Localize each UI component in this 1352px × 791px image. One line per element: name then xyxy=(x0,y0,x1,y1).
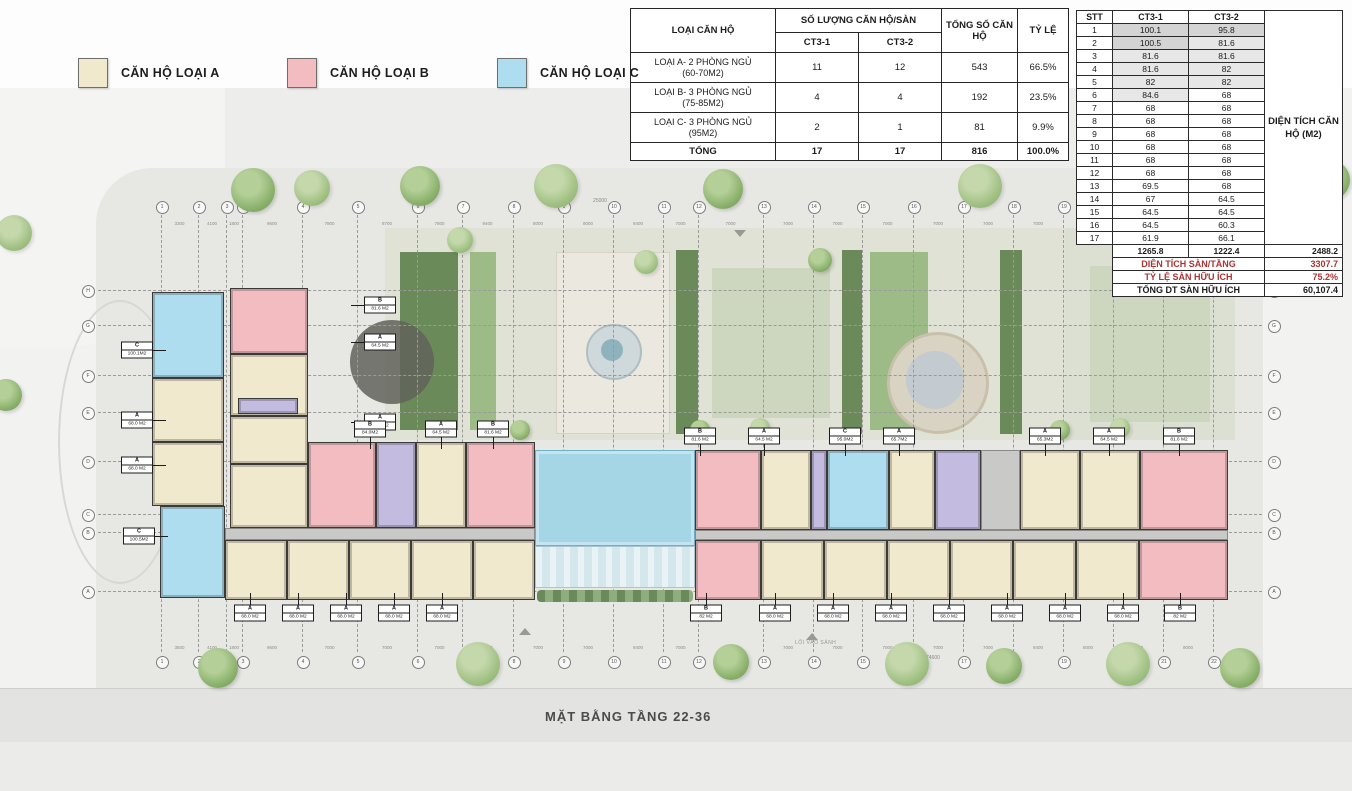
grid-marker-left: C xyxy=(82,509,95,522)
grid-marker-top: 15 xyxy=(857,201,870,214)
unit-type-letter: B xyxy=(478,422,508,430)
grid-dimension: 9400 xyxy=(633,221,643,226)
tree xyxy=(808,248,832,272)
tree xyxy=(1220,648,1260,688)
unit-area-label: B82 M2 xyxy=(1164,605,1196,622)
area-ct32-value: 60.3 xyxy=(1189,219,1265,232)
label-leader-line xyxy=(152,350,166,351)
unit-area-label: A65.7M2 xyxy=(883,428,915,445)
unit-type-a xyxy=(152,378,224,442)
label-leader-line xyxy=(441,437,442,449)
summary-total: 192 xyxy=(942,83,1018,113)
area-ct31-value: 64.5 xyxy=(1113,206,1189,219)
grid-marker-bottom: 15 xyxy=(857,656,870,669)
grid-marker-left: F xyxy=(82,370,95,383)
area-ct32-value: 68 xyxy=(1189,102,1265,115)
grid-marker-bottom: 19 xyxy=(1058,656,1071,669)
tree xyxy=(198,648,238,688)
area-stt: 8 xyxy=(1077,115,1113,128)
grid-marker-top: 14 xyxy=(808,201,821,214)
grid-marker-top: 5 xyxy=(352,201,365,214)
grid-marker-right: B xyxy=(1268,527,1281,540)
elevator-core xyxy=(935,450,981,530)
label-leader-line xyxy=(891,593,892,605)
unit-type-letter: A xyxy=(235,606,265,614)
grid-marker-top: 18 xyxy=(1008,201,1021,214)
area-ct32-value: 68 xyxy=(1189,154,1265,167)
label-leader-line xyxy=(152,420,166,421)
area-stt: 10 xyxy=(1077,141,1113,154)
corridor xyxy=(981,450,1020,530)
grid-dimension: 7000 xyxy=(583,645,593,650)
tree xyxy=(1106,642,1150,686)
unit-area-value: 84.0M2 xyxy=(355,430,385,437)
unit-area-value: 68.0 M2 xyxy=(427,614,457,621)
area-ct31-value: 68 xyxy=(1113,154,1189,167)
unit-area-value: 68.0 M2 xyxy=(760,614,790,621)
summary-type: LOẠI C- 3 PHÒNG NGỦ(95M2) xyxy=(631,113,776,143)
unit-type-letter: C xyxy=(124,529,154,537)
unit-type-letter: A xyxy=(992,606,1022,614)
grid-marker-top: 3 xyxy=(221,201,234,214)
unit-type-a xyxy=(230,416,308,464)
grid-dimension: 7000 xyxy=(783,645,793,650)
unit-type-a xyxy=(761,540,824,600)
area-ct32-value: 68 xyxy=(1189,167,1265,180)
tree xyxy=(986,648,1022,684)
col-header-ct31: CT3-1 xyxy=(776,33,859,53)
grid-dimension: 7000 xyxy=(533,645,543,650)
area-ct32-value: 95.8 xyxy=(1189,24,1265,37)
pool-deck xyxy=(535,546,695,588)
unit-area-label: C100.1M2 xyxy=(121,342,153,359)
unit-type-a xyxy=(225,540,287,600)
legend: CĂN HỘ LOẠI ACĂN HỘ LOẠI BCĂN HỘ LOẠI C xyxy=(0,58,700,92)
grid-marker-bottom: 5 xyxy=(352,656,365,669)
grid-dimension: 1800 xyxy=(229,645,239,650)
label-leader-line xyxy=(1045,444,1046,456)
unit-area-value: 68.0 M2 xyxy=(934,614,964,621)
label-leader-line xyxy=(154,536,168,537)
elevator-core xyxy=(376,442,416,528)
grid-marker-bottom: 17 xyxy=(958,656,971,669)
grid-marker-right: F xyxy=(1268,370,1281,383)
unit-type-a xyxy=(761,450,811,530)
summary-ct31: 2 xyxy=(776,113,859,143)
grid-marker-top: 19 xyxy=(1058,201,1071,214)
label-leader-line xyxy=(845,444,846,456)
grid-marker-bottom: 12 xyxy=(693,656,706,669)
grid-dimension: 7800 xyxy=(324,221,334,226)
area-stt: 6 xyxy=(1077,89,1113,102)
swimming-pool xyxy=(535,450,695,546)
area-stt: 12 xyxy=(1077,167,1113,180)
grid-marker-left: E xyxy=(82,407,95,420)
area-stt: 17 xyxy=(1077,232,1113,245)
legend-item-3: CĂN HỘ LOẠI C xyxy=(497,58,639,88)
label-leader-line xyxy=(1007,593,1008,605)
grid-marker-right: D xyxy=(1268,456,1281,469)
area-ct31-value: 68 xyxy=(1113,141,1189,154)
garden-area xyxy=(470,252,496,430)
tree xyxy=(447,227,473,253)
unit-area-value: 81.6 M2 xyxy=(478,430,508,437)
area-sum-ct31: 1265.8 xyxy=(1113,245,1189,258)
unit-area-label: B82 M2 xyxy=(690,605,722,622)
unit-area-value: 64.5 M2 xyxy=(426,430,456,437)
unit-type-b xyxy=(466,442,535,528)
unit-type-letter: A xyxy=(1094,429,1124,437)
unit-type-c xyxy=(152,292,224,378)
grid-dimension: 7000 xyxy=(983,645,993,650)
unit-type-b xyxy=(308,442,376,528)
tree xyxy=(534,164,578,208)
summary-row-3: LOẠI C- 3 PHÒNG NGỦ(95M2)21819.9% xyxy=(631,113,1069,143)
area-col-header-ct3-1: CT3-1 xyxy=(1113,11,1189,24)
entrance-arrow xyxy=(734,230,746,237)
unit-type-letter: A xyxy=(876,606,906,614)
legend-label: CĂN HỘ LOẠI A xyxy=(121,66,220,80)
area-ct32-value: 82 xyxy=(1189,63,1265,76)
grid-marker-top: 11 xyxy=(658,201,671,214)
legend-swatch-2 xyxy=(287,58,317,88)
label-leader-line xyxy=(351,342,365,343)
area-footer-row-3: TỔNG DT SÀN HỮU ÍCH60,107.4 xyxy=(1077,284,1343,297)
plan-caption: MẶT BẰNG TẦNG 22-36 xyxy=(545,709,711,724)
unit-type-letter: B xyxy=(1164,429,1194,437)
unit-type-letter: A xyxy=(1108,606,1138,614)
unit-type-letter: A xyxy=(365,335,395,343)
label-leader-line xyxy=(1180,593,1181,605)
unit-area-label: A64.5 M2 xyxy=(364,334,396,351)
unit-area-label: A68.0 M2 xyxy=(759,605,791,622)
grid-dimension: 8700 xyxy=(382,221,392,226)
grid-marker-bottom: 9 xyxy=(558,656,571,669)
grid-dimension: 8000 xyxy=(533,221,543,226)
unit-type-b xyxy=(695,450,761,530)
label-leader-line xyxy=(394,593,395,605)
grid-marker-bottom: 13 xyxy=(758,656,771,669)
unit-type-a xyxy=(1076,540,1139,600)
col-header-total: TỔNG SỐ CĂN HỘ xyxy=(942,9,1018,53)
area-sum-ct32: 1222.4 xyxy=(1189,245,1265,258)
grid-marker-left: G xyxy=(82,320,95,333)
unit-area-value: 68.0 M2 xyxy=(992,614,1022,621)
area-ct31-value: 67 xyxy=(1113,193,1189,206)
unit-area-label: A64.5 M2 xyxy=(748,428,780,445)
area-footer-label: TỔNG DT SÀN HỮU ÍCH xyxy=(1113,284,1265,297)
label-leader-line xyxy=(1065,593,1066,605)
unit-area-value: 68.0 M2 xyxy=(1108,614,1138,621)
label-leader-line xyxy=(493,437,494,449)
unit-area-label: A68.0 M2 xyxy=(991,605,1023,622)
grid-marker-right: E xyxy=(1268,407,1281,420)
unit-type-letter: A xyxy=(884,429,914,437)
summary-total-ct31: 17 xyxy=(776,143,859,161)
label-leader-line xyxy=(764,444,765,456)
unit-area-value: 68.0 M2 xyxy=(122,466,152,473)
unit-area-value: 100.1M2 xyxy=(122,351,152,358)
area-ct31-value: 82 xyxy=(1113,76,1189,89)
grid-marker-bottom: 10 xyxy=(608,656,621,669)
area-footer-value: 3307.7 xyxy=(1265,258,1343,271)
area-footer-row-2: TỶ LỆ SÀN HỮU ÍCH75.2% xyxy=(1077,271,1343,284)
area-ct31-value: 81.6 xyxy=(1113,63,1189,76)
garden-area xyxy=(1000,250,1022,434)
grid-dimension: 8000 xyxy=(1083,645,1093,650)
unit-area-label: A68.0 M2 xyxy=(817,605,849,622)
unit-area-value: 68.0 M2 xyxy=(331,614,361,621)
label-leader-line xyxy=(1109,444,1110,456)
label-leader-line xyxy=(346,593,347,605)
unit-area-value: 81.6 M2 xyxy=(365,306,395,313)
unit-type-b xyxy=(1140,450,1228,530)
label-leader-line xyxy=(775,593,776,605)
area-sum-spacer xyxy=(1077,245,1113,258)
label-leader-line xyxy=(298,593,299,605)
area-ct32-value: 81.6 xyxy=(1189,37,1265,50)
grid-dimension: 9600 xyxy=(267,645,277,650)
grid-marker-right: G xyxy=(1268,320,1281,333)
unit-type-letter: B xyxy=(691,606,721,614)
area-ct31-value: 68 xyxy=(1113,115,1189,128)
grid-marker-left: D xyxy=(82,456,95,469)
area-footer-value: 60,107.4 xyxy=(1265,284,1343,297)
area-ct32-value: 68 xyxy=(1189,180,1265,193)
area-side-label: DIỆN TÍCH CĂN HỘ (M2) xyxy=(1265,11,1343,245)
grid-marker-bottom: 21 xyxy=(1158,656,1171,669)
unit-type-letter: A xyxy=(122,458,152,466)
summary-total: 81 xyxy=(942,113,1018,143)
area-ct31-value: 68 xyxy=(1113,102,1189,115)
grid-dimension: 1800 xyxy=(229,221,239,226)
tree xyxy=(958,164,1002,208)
entrance-arrow xyxy=(806,633,818,640)
legend-swatch-3 xyxy=(497,58,527,88)
unit-area-value: 64.5 M2 xyxy=(1094,437,1124,444)
unit-type-a xyxy=(473,540,535,600)
unit-type-letter: A xyxy=(818,606,848,614)
label-leader-line xyxy=(351,305,365,306)
unit-area-value: 68.0 M2 xyxy=(818,614,848,621)
area-ct31-value: 81.6 xyxy=(1113,50,1189,63)
tree xyxy=(713,644,749,680)
grid-marker-top: 7 xyxy=(457,201,470,214)
unit-type-a xyxy=(1013,540,1076,600)
unit-type-b xyxy=(695,540,761,600)
area-stt: 2 xyxy=(1077,37,1113,50)
unit-type-letter: A xyxy=(749,429,779,437)
area-ct32-value: 82 xyxy=(1189,76,1265,89)
summary-total-ct32: 17 xyxy=(859,143,942,161)
grid-overall-dimension: 25000 xyxy=(593,198,607,204)
unit-area-value: 81.6 M2 xyxy=(1164,437,1194,444)
area-ct32-value: 64.5 xyxy=(1189,193,1265,206)
unit-area-label: A64.5 M2 xyxy=(425,421,457,438)
unit-area-value: 65.7M2 xyxy=(884,437,914,444)
unit-type-letter: C xyxy=(830,429,860,437)
area-stt: 15 xyxy=(1077,206,1113,219)
unit-area-value: 68.0 M2 xyxy=(235,614,265,621)
tree xyxy=(634,250,658,274)
unit-area-label: A68.0 M2 xyxy=(426,605,458,622)
area-ct31-value: 61.9 xyxy=(1113,232,1189,245)
area-ct31-value: 64.5 xyxy=(1113,219,1189,232)
summary-ct32: 12 xyxy=(859,53,942,83)
unit-type-a xyxy=(1080,450,1140,530)
grid-dimension: 7800 xyxy=(434,221,444,226)
area-ct32-value: 64.5 xyxy=(1189,206,1265,219)
unit-area-label: A64.5 M2 xyxy=(1093,428,1125,445)
unit-type-a xyxy=(887,540,950,600)
unit-area-label: A68.0 M2 xyxy=(1107,605,1139,622)
grid-dimension: 7000 xyxy=(1033,221,1043,226)
unit-type-letter: A xyxy=(426,422,456,430)
tree xyxy=(231,168,275,212)
tree xyxy=(456,642,500,686)
col-header-ct32: CT3-2 xyxy=(859,33,942,53)
unit-type-letter: A xyxy=(122,413,152,421)
corridor xyxy=(225,528,535,540)
summary-ratio: 9.9% xyxy=(1018,113,1069,143)
grid-marker-top: 13 xyxy=(758,201,771,214)
area-ct32-value: 68 xyxy=(1189,128,1265,141)
unit-area-label: A68.0 M2 xyxy=(121,457,153,474)
area-footer-spacer xyxy=(1077,258,1113,271)
grid-marker-top: 8 xyxy=(508,201,521,214)
unit-type-a xyxy=(1020,450,1080,530)
fountain xyxy=(601,339,623,361)
col-header-ratio: TỶ LỆ xyxy=(1018,9,1069,53)
unit-area-label: B81.6 M2 xyxy=(1163,428,1195,445)
summary-ct32: 4 xyxy=(859,83,942,113)
grid-dimension: 3500 xyxy=(174,645,184,650)
unit-area-label: B81.6 M2 xyxy=(684,428,716,445)
grid-marker-bottom: 11 xyxy=(658,656,671,669)
unit-type-letter: A xyxy=(331,606,361,614)
area-ct31-value: 69.5 xyxy=(1113,180,1189,193)
grid-dimension: 8000 xyxy=(1183,645,1193,650)
unit-area-label: C95.0M2 xyxy=(829,428,861,445)
garden-area xyxy=(842,250,862,434)
unit-type-a xyxy=(411,540,473,600)
tree xyxy=(0,215,32,251)
unit-area-value: 82 M2 xyxy=(691,614,721,621)
area-stt: 14 xyxy=(1077,193,1113,206)
label-leader-line xyxy=(833,593,834,605)
summary-type-name: LOẠI C- 3 PHÒNG NGỦ xyxy=(634,117,772,128)
label-leader-line xyxy=(706,593,707,605)
area-footer-value: 75.2% xyxy=(1265,271,1343,284)
grid-dimension: 3300 xyxy=(174,221,184,226)
summary-type-size: (95M2) xyxy=(634,128,772,139)
unit-type-letter: A xyxy=(1030,429,1060,437)
area-footer-label: TỶ LỆ SÀN HỮU ÍCH xyxy=(1113,271,1265,284)
tree xyxy=(885,642,929,686)
unit-area-value: 68.0 M2 xyxy=(283,614,313,621)
grid-marker-bottom: 6 xyxy=(412,656,425,669)
legend-label: CĂN HỘ LOẠI C xyxy=(540,66,639,80)
grid-dimension: 4100 xyxy=(207,221,217,226)
unit-type-letter: B xyxy=(685,429,715,437)
grid-dimension: 7000 xyxy=(882,221,892,226)
area-stt: 3 xyxy=(1077,50,1113,63)
label-leader-line xyxy=(152,465,166,466)
unit-type-letter: B xyxy=(355,422,385,430)
grid-dimension: 7000 xyxy=(675,221,685,226)
area-stt: 13 xyxy=(1077,180,1113,193)
grid-dimension: 9400 xyxy=(633,645,643,650)
grid-marker-top: 16 xyxy=(908,201,921,214)
summary-ct31: 11 xyxy=(776,53,859,83)
summary-type-size: (75-85M2) xyxy=(634,98,772,109)
area-ct31-value: 68 xyxy=(1113,128,1189,141)
unit-type-letter: A xyxy=(427,606,457,614)
entrance-label: LỐI VÀO SẢNH xyxy=(795,640,836,646)
area-ct32-value: 68 xyxy=(1189,89,1265,102)
grid-marker-top: 2 xyxy=(193,201,206,214)
area-stt: 11 xyxy=(1077,154,1113,167)
area-stt: 7 xyxy=(1077,102,1113,115)
unit-area-value: 64.5 M2 xyxy=(749,437,779,444)
summary-total-row: TỔNG1717816100.0% xyxy=(631,143,1069,161)
label-leader-line xyxy=(370,437,371,449)
unit-type-letter: A xyxy=(379,606,409,614)
unit-area-label: A68.0 M2 xyxy=(1049,605,1081,622)
corridor xyxy=(695,530,1228,540)
elevator-core xyxy=(238,398,298,414)
entrance-arrow xyxy=(519,628,531,635)
unit-area-value: 65.3M2 xyxy=(1030,437,1060,444)
unit-type-b xyxy=(230,288,308,354)
unit-area-label: A65.3M2 xyxy=(1029,428,1061,445)
unit-area-label: A68.0 M2 xyxy=(121,412,153,429)
unit-area-label: A68.0 M2 xyxy=(875,605,907,622)
grid-dimension: 7000 xyxy=(675,645,685,650)
unit-type-a xyxy=(349,540,411,600)
unit-type-a xyxy=(416,442,466,528)
area-ct32-value: 81.6 xyxy=(1189,50,1265,63)
unit-area-label: A68.0 M2 xyxy=(234,605,266,622)
tree xyxy=(510,420,530,440)
area-col-header-stt: STT xyxy=(1077,11,1113,24)
grid-marker-top: 1 xyxy=(156,201,169,214)
grid-dimension: 7000 xyxy=(832,221,842,226)
area-stt: 1 xyxy=(1077,24,1113,37)
grid-dimension: 7000 xyxy=(434,645,444,650)
area-sum-row: 1265.81222.42488.2 xyxy=(1077,245,1343,258)
unit-area-label: B84.0M2 xyxy=(354,421,386,438)
grid-dimension: 9600 xyxy=(267,221,277,226)
unit-type-letter: C xyxy=(122,343,152,351)
grid-marker-top: 10 xyxy=(608,201,621,214)
grid-marker-left: A xyxy=(82,586,95,599)
grid-dimension: 7000 xyxy=(382,645,392,650)
unit-type-c xyxy=(160,506,225,598)
summary-header-row: LOẠI CĂN HỘSỐ LƯỢNG CĂN HỘ/SÀNTỔNG SỐ CĂ… xyxy=(631,9,1069,33)
unit-type-letter: A xyxy=(934,606,964,614)
unit-type-a xyxy=(230,464,308,528)
col-header-type: LOẠI CĂN HỘ xyxy=(631,9,776,53)
unit-area-value: 82 M2 xyxy=(1165,614,1195,621)
unit-area-value: 68.0 M2 xyxy=(876,614,906,621)
unit-type-a xyxy=(152,442,224,506)
area-header-row: STTCT3-1CT3-2DIỆN TÍCH CĂN HỘ (M2) xyxy=(1077,11,1343,24)
unit-area-value: 81.6 M2 xyxy=(685,437,715,444)
summary-total: 543 xyxy=(942,53,1018,83)
unit-type-b xyxy=(1139,540,1228,600)
grid-dimension: 7000 xyxy=(324,645,334,650)
